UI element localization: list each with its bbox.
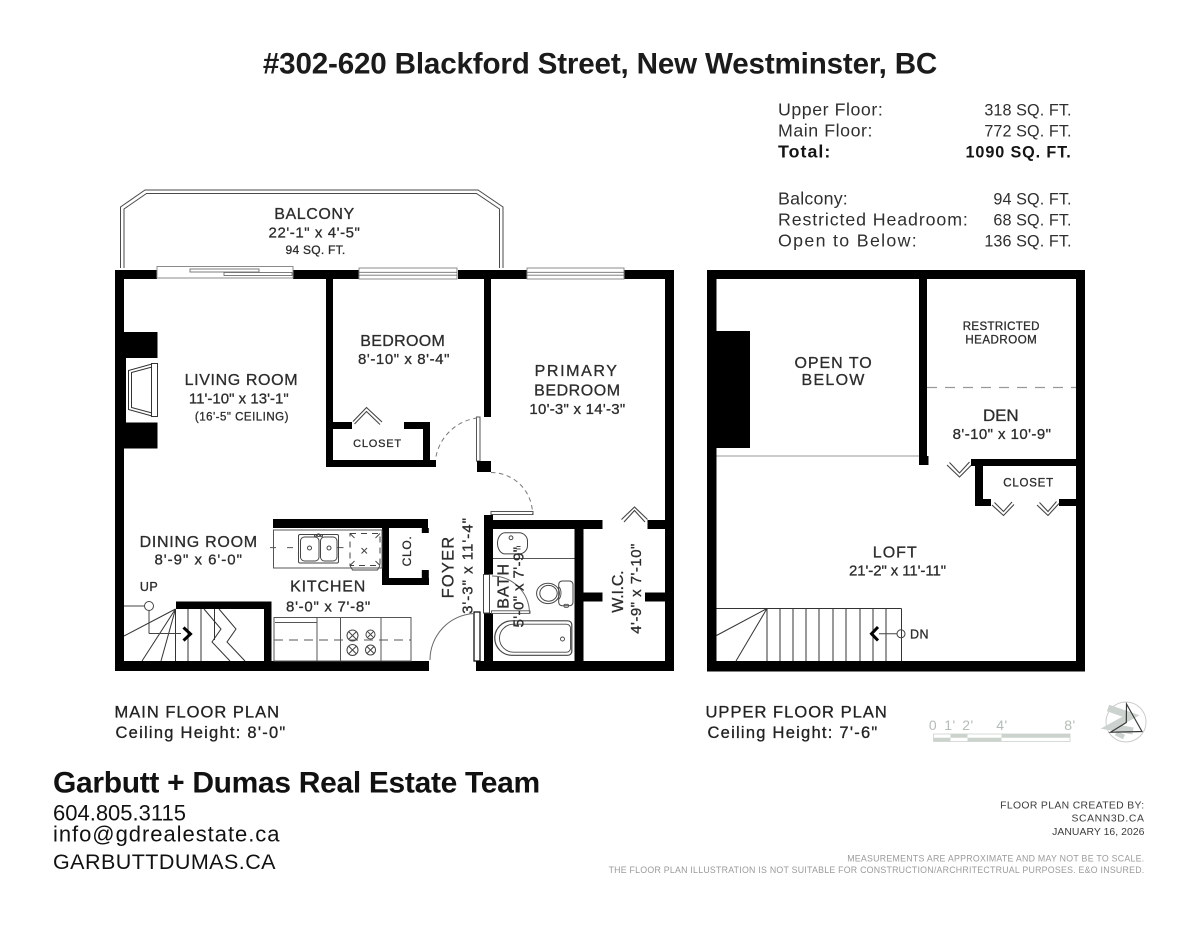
svg-text:10'-3" x 14'-3": 10'-3" x 14'-3" — [529, 401, 625, 418]
svg-text:68 SQ. FT.: 68 SQ. FT. — [993, 212, 1071, 230]
svg-text:94 SQ. FT.: 94 SQ. FT. — [286, 243, 346, 257]
svg-text:22'-1" x 4'-5": 22'-1" x 4'-5" — [269, 225, 361, 242]
svg-text:1': 1' — [944, 717, 955, 733]
svg-text:PRIMARY: PRIMARY — [535, 363, 619, 380]
svg-text:Total:: Total: — [778, 141, 831, 161]
svg-text:1090 SQ. FT.: 1090 SQ. FT. — [966, 143, 1072, 161]
svg-text:0: 0 — [929, 717, 937, 733]
svg-text:UP: UP — [140, 580, 158, 594]
svg-text:11'-10" x 13'-1": 11'-10" x 13'-1" — [189, 391, 289, 408]
svg-text:4': 4' — [996, 717, 1007, 733]
svg-text:LOFT: LOFT — [873, 545, 918, 562]
svg-text:info@gdrealestate.ca: info@gdrealestate.ca — [53, 822, 280, 847]
svg-text:Restricted Headroom:: Restricted Headroom: — [778, 210, 969, 230]
svg-text:(16'-5" CEILING): (16'-5" CEILING) — [195, 412, 289, 424]
svg-text:UPPER FLOOR PLAN: UPPER FLOOR PLAN — [706, 703, 888, 721]
svg-text:Upper Floor:: Upper Floor: — [778, 99, 883, 119]
svg-text:SCANN3D.CA: SCANN3D.CA — [1072, 814, 1145, 825]
svg-text:Main Floor:: Main Floor: — [778, 120, 873, 140]
svg-text:CLO.: CLO. — [400, 536, 414, 567]
svg-text:8'-10" x 10'-9": 8'-10" x 10'-9" — [953, 426, 1052, 443]
svg-text:BEDROOM: BEDROOM — [360, 333, 445, 350]
svg-text:CLOSET: CLOSET — [1003, 478, 1054, 490]
svg-text:GARBUTTDUMAS.CA: GARBUTTDUMAS.CA — [53, 850, 276, 874]
svg-text:94 SQ. FT.: 94 SQ. FT. — [993, 191, 1071, 209]
svg-text:FLOOR PLAN CREATED BY:: FLOOR PLAN CREATED BY: — [1000, 801, 1144, 812]
svg-text:LIVING ROOM: LIVING ROOM — [185, 372, 299, 389]
svg-text:DINING ROOM: DINING ROOM — [140, 534, 258, 551]
svg-text:MEASUREMENTS ARE APPROXIMATE A: MEASUREMENTS ARE APPROXIMATE AND MAY NOT… — [847, 854, 1144, 864]
svg-text:BELOW: BELOW — [802, 372, 866, 389]
svg-text:Ceiling Height: 7'-6": Ceiling Height: 7'-6" — [708, 724, 879, 742]
svg-text:21'-2" x 11'-11": 21'-2" x 11'-11" — [849, 563, 946, 580]
svg-text:KITCHEN: KITCHEN — [290, 579, 366, 596]
svg-text:2': 2' — [962, 717, 973, 733]
svg-text:RESTRICTED: RESTRICTED — [963, 321, 1040, 333]
svg-text:Garbutt + Dumas Real Estate Te: Garbutt + Dumas Real Estate Team — [53, 766, 540, 799]
svg-text:136 SQ. FT.: 136 SQ. FT. — [984, 232, 1071, 250]
svg-text:W.I.C.: W.I.C. — [610, 571, 627, 613]
svg-text:HEADROOM: HEADROOM — [965, 335, 1037, 347]
svg-text:Open to Below:: Open to Below: — [778, 230, 918, 250]
svg-text:OPEN TO: OPEN TO — [794, 355, 872, 372]
svg-text:THE FLOOR PLAN ILLUSTRATION IS: THE FLOOR PLAN ILLUSTRATION IS NOT SUITA… — [609, 865, 1145, 875]
svg-text:JANUARY 16, 2026: JANUARY 16, 2026 — [1052, 827, 1145, 838]
svg-text:Balcony:: Balcony: — [778, 189, 848, 209]
svg-text:DN: DN — [910, 628, 929, 642]
svg-text:FOYER: FOYER — [440, 536, 458, 599]
svg-text:4'-9" x 7'-10": 4'-9" x 7'-10" — [628, 543, 645, 634]
svg-text:CLOSET: CLOSET — [353, 438, 402, 450]
svg-text:5'-0" x 7'-9": 5'-0" x 7'-9" — [511, 547, 528, 628]
svg-text:BALCONY: BALCONY — [274, 206, 355, 223]
svg-text:3'-3" x 11'-4": 3'-3" x 11'-4" — [460, 517, 477, 614]
svg-text:772 SQ. FT.: 772 SQ. FT. — [984, 122, 1071, 140]
svg-text:DEN: DEN — [983, 406, 1019, 425]
svg-text:8'-10" x 8'-4": 8'-10" x 8'-4" — [358, 351, 450, 368]
svg-text:Ceiling Height: 8'-0": Ceiling Height: 8'-0" — [116, 724, 287, 742]
svg-text:318 SQ. FT.: 318 SQ. FT. — [984, 101, 1071, 119]
svg-text:MAIN FLOOR PLAN: MAIN FLOOR PLAN — [115, 703, 281, 721]
svg-text:#302-620 Blackford Street, New: #302-620 Blackford Street, New Westminst… — [263, 48, 937, 81]
svg-text:8'-0" x 7'-8": 8'-0" x 7'-8" — [286, 598, 371, 615]
svg-text:8'-9" x 6'-0": 8'-9" x 6'-0" — [154, 551, 242, 568]
svg-text:BEDROOM: BEDROOM — [534, 383, 621, 400]
svg-text:8': 8' — [1064, 717, 1075, 733]
